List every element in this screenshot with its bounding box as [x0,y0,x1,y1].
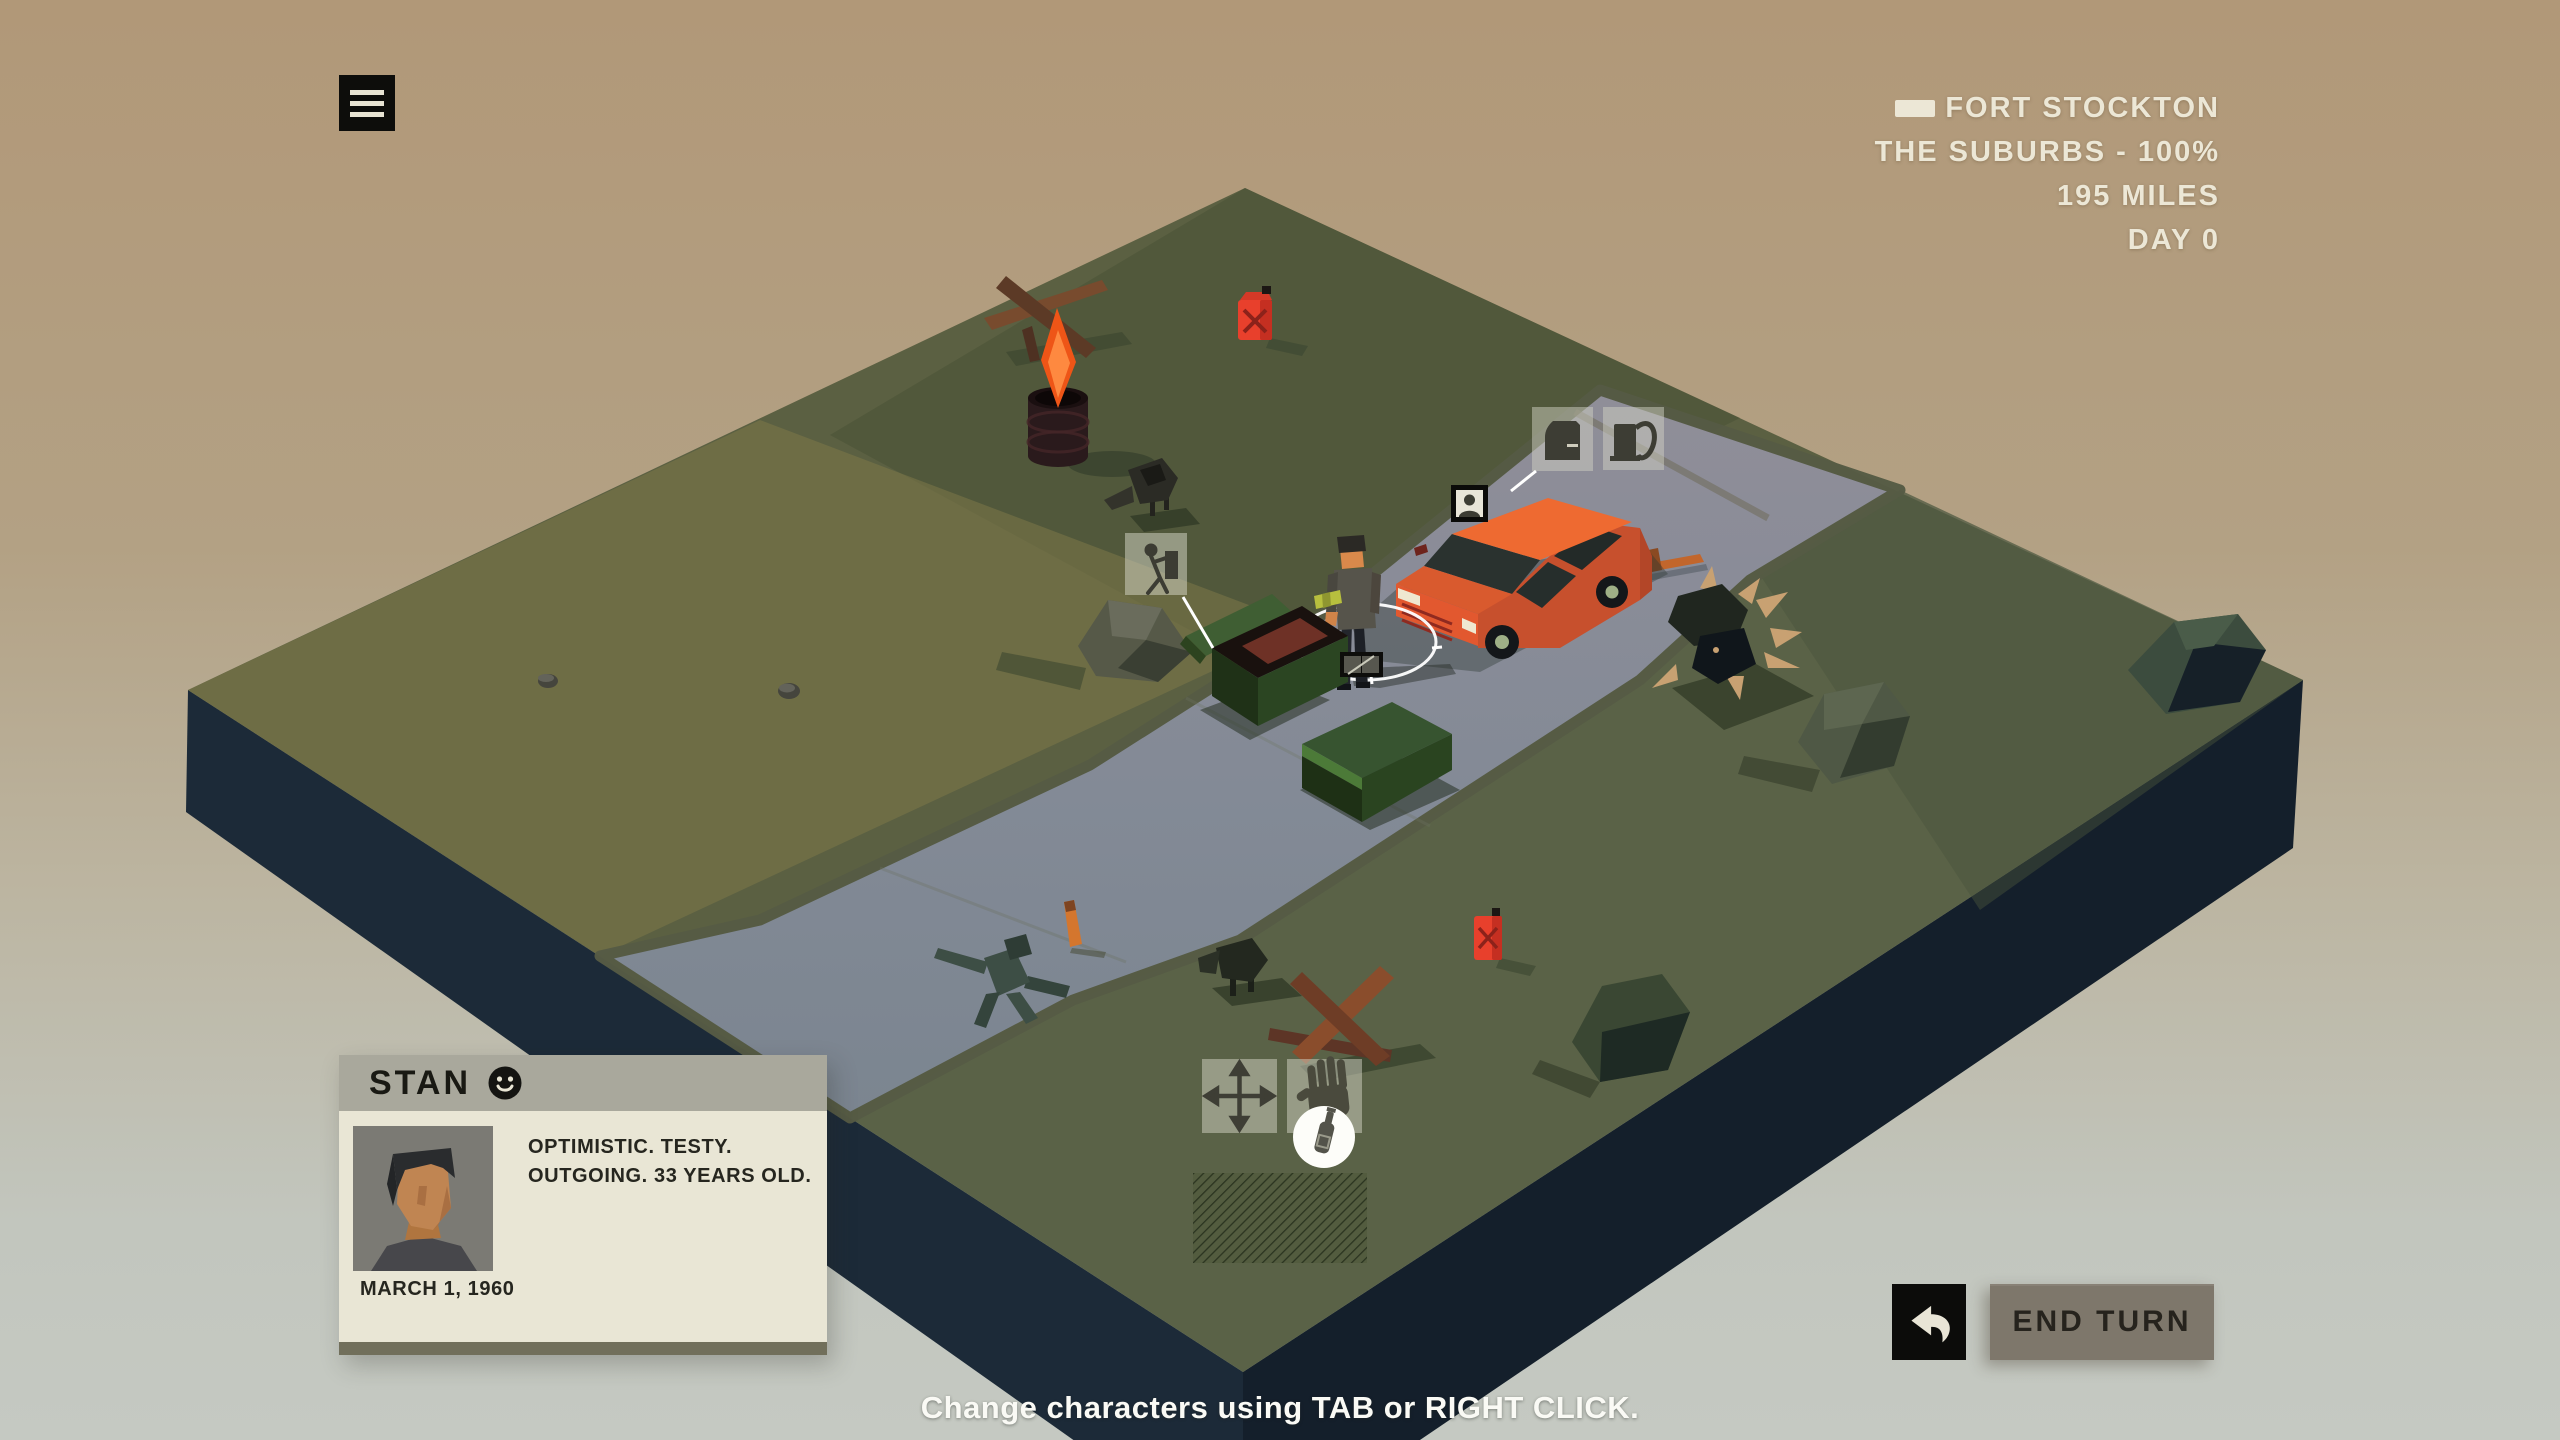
character-traits: OPTIMISTIC. TESTY. OUTGOING. 33 YEARS OL… [528,1133,811,1191]
undo-arrow-icon [1903,1296,1955,1348]
character-card: STAN OPTIMISTIC. TESTY. OUTGOING. 33 YEA… [339,1055,827,1355]
hamburger-icon [350,90,384,95]
hint-text: Change characters using TAB or RIGHT CLI… [921,1390,1640,1426]
smiley-icon [487,1065,523,1101]
day-label: DAY 0 [1875,218,2220,262]
traits-line1: OPTIMISTIC. TESTY. [528,1133,811,1162]
fuel-action-panel[interactable] [1603,407,1664,470]
bottle-action[interactable] [1293,1106,1355,1168]
character-card-footer [339,1342,827,1355]
character-portrait-marker[interactable] [1451,485,1488,522]
hatched-exit-zone[interactable] [1193,1173,1367,1263]
fuel-gauge-icon [1895,100,1935,117]
traits-line2: OUTGOING. 33 YEARS OLD. [528,1162,811,1191]
item-slot[interactable] [1340,652,1383,677]
character-birthdate: MARCH 1, 1960 [360,1278,515,1301]
end-turn-label: END TURN [2013,1305,2192,1339]
undo-button[interactable] [1892,1284,1966,1360]
character-card-body: OPTIMISTIC. TESTY. OUTGOING. 33 YEARS OL… [339,1111,827,1342]
area-progress-label: THE SUBURBS - 100% [1875,130,2220,174]
move-action-panel[interactable] [1202,1059,1277,1133]
car-door-icon [1545,421,1580,460]
end-turn-button[interactable]: END TURN [1990,1284,2214,1360]
menu-button[interactable] [339,75,395,131]
mission-info: FORT STOCKTON THE SUBURBS - 100% 195 MIL… [1875,86,2220,262]
game-screen: FORT STOCKTON THE SUBURBS - 100% 195 MIL… [0,0,2560,1440]
character-portrait [353,1126,493,1271]
distance-label: 195 MILES [1875,174,2220,218]
character-name: STAN [369,1064,471,1103]
destination-label: FORT STOCKTON [1945,86,2220,130]
character-card-header: STAN [339,1055,827,1111]
destination-row: FORT STOCKTON [1875,86,2220,130]
